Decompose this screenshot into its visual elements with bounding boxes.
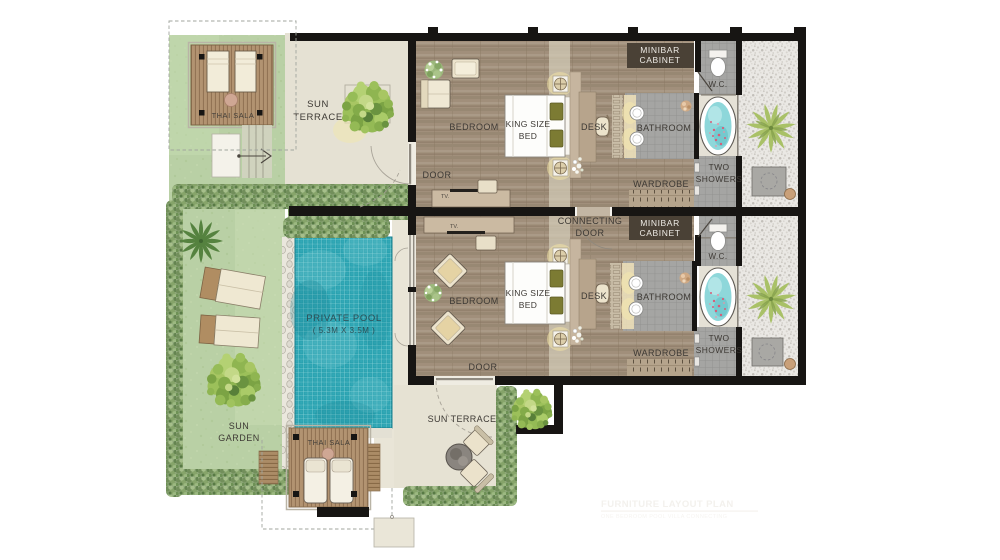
svg-text:BED: BED (519, 300, 537, 310)
svg-text:BEDROOM: BEDROOM (449, 296, 498, 306)
svg-text:SUN TERRACE: SUN TERRACE (428, 414, 497, 424)
svg-text:SHOWERS: SHOWERS (696, 345, 743, 355)
svg-text:GARDEN: GARDEN (218, 433, 260, 443)
svg-text:( 5.3M X 3.5M ): ( 5.3M X 3.5M ) (313, 326, 376, 335)
svg-text:SUN: SUN (307, 99, 329, 110)
svg-text:FURNITURE LAYOUT PLAN: FURNITURE LAYOUT PLAN (601, 499, 734, 510)
svg-text:TV.: TV. (441, 194, 450, 200)
svg-text:DOOR: DOOR (469, 362, 498, 372)
svg-text:DESK: DESK (581, 291, 607, 301)
svg-text:TWO: TWO (708, 333, 729, 343)
svg-text:WARDROBE: WARDROBE (633, 348, 689, 358)
svg-text:TERRACE: TERRACE (293, 112, 343, 123)
svg-text:WARDROBE: WARDROBE (633, 179, 689, 189)
svg-text:SUN: SUN (229, 421, 250, 431)
svg-text:SHOWERS: SHOWERS (696, 174, 743, 184)
svg-text:MINIBAR: MINIBAR (640, 45, 680, 55)
svg-text:BEDROOM: BEDROOM (449, 122, 498, 132)
svg-text:W.C.: W.C. (709, 252, 728, 261)
svg-text:KING SIZE: KING SIZE (506, 119, 551, 129)
svg-text:BATHROOM: BATHROOM (637, 123, 692, 133)
svg-text:THAI SALA: THAI SALA (212, 111, 255, 120)
svg-text:TWO: TWO (708, 162, 729, 172)
svg-text:KING SIZE: KING SIZE (506, 288, 551, 298)
svg-text:W.C.: W.C. (709, 80, 728, 89)
svg-text:DOOR: DOOR (423, 170, 452, 180)
svg-text:CABINET: CABINET (639, 55, 680, 65)
svg-text:MINIBAR: MINIBAR (640, 218, 680, 228)
svg-text:ONE BEDROOM POOL VILLA CONNECT: ONE BEDROOM POOL VILLA CONNECTING (601, 514, 727, 520)
svg-text:BATHROOM: BATHROOM (637, 292, 692, 302)
svg-text:DOOR: DOOR (576, 228, 605, 238)
svg-text:CONNECTING: CONNECTING (558, 216, 623, 226)
svg-text:PRIVATE POOL: PRIVATE POOL (306, 313, 381, 324)
svg-text:DESK: DESK (581, 122, 607, 132)
svg-text:TV.: TV. (450, 224, 459, 230)
svg-text:BED: BED (519, 131, 537, 141)
svg-text:THAI SALA: THAI SALA (308, 438, 351, 447)
svg-text:CABINET: CABINET (639, 228, 680, 238)
